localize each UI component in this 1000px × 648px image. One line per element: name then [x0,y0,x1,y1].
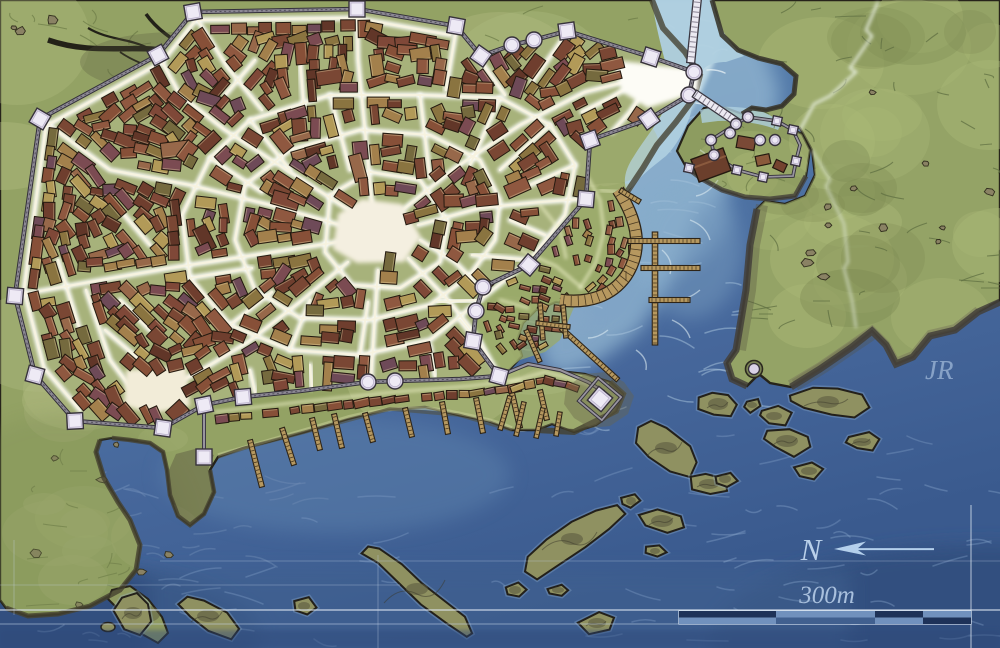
svg-text:N: N [800,532,824,567]
svg-text:300m: 300m [798,582,855,609]
svg-text:JR: JR [925,355,954,385]
